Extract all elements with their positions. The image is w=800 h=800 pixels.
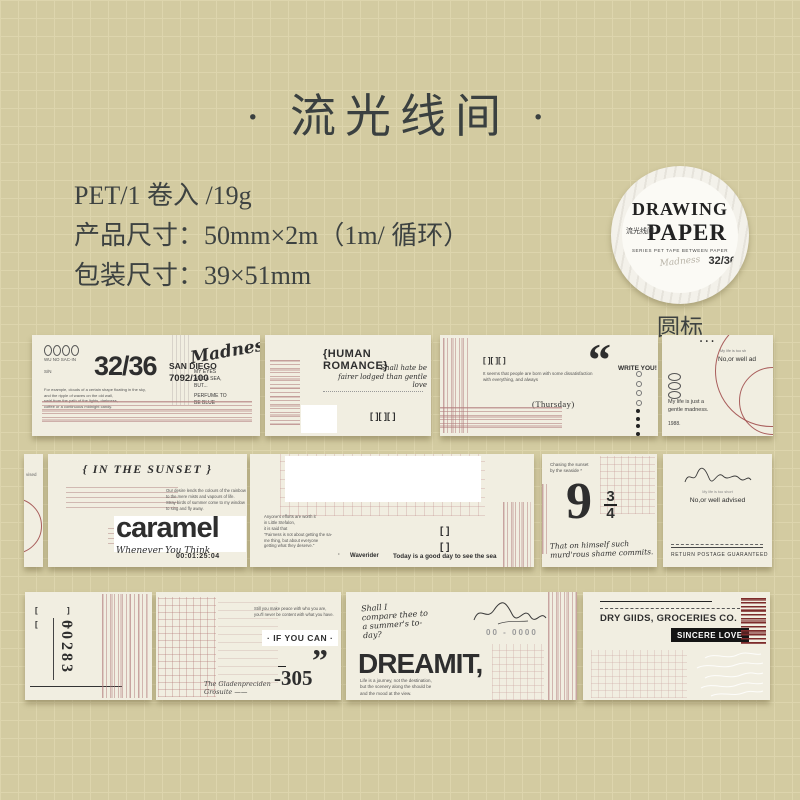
stripe-column [548,592,577,700]
info-package-size: 包装尺寸：39×51mm [74,256,469,296]
shall-i-script: Shall I compare thee to a summer's to- d… [361,600,430,641]
shame-script-text: That on himself such murd'rous shame com… [550,538,654,560]
fraction-bottom: 4 [606,507,614,520]
dots-text: • • • [700,339,715,345]
signature-scribble [468,600,548,628]
tape-roll-badge: DRAWING 流光线间 PAPER SERIES PET TAPE BETWE… [611,166,749,304]
stripe-column [503,502,531,567]
strip3-segment-b: Still you make peace with who you are, y… [156,592,341,700]
stripe-block [270,360,300,428]
dashed-rule [671,544,763,545]
stripe-band [440,407,562,428]
pink-grid [492,644,544,700]
tape-strip-1: WU NO SAC-IN S/N 32/36 SAN DIEGO 7092/10… [32,335,773,436]
waverider-bullet: · [338,552,340,558]
header-dashed-rule [600,608,740,609]
fraction-top: 3 [606,490,614,503]
bracket-row-2: [ ] [440,542,449,553]
strip1-segment-a: WU NO SAC-IN S/N 32/36 SAN DIEGO 7092/10… [32,335,260,436]
romance-script-line2: fairer lodged than gentle love [325,373,427,389]
tiny-text: My life is too short [663,490,772,495]
ruled-lines [66,487,178,509]
strip3-segment-d: DRY GIIDS, GROCERIES CO. SINCERE LOVE [583,592,770,700]
journey-paragraph: Life is a journey, not the destination, … [360,678,432,697]
badge-number-text: 32/36 [708,255,736,267]
serial-header-text: WU NO SAC-IN [44,357,76,363]
page-title: · 流光线间 · [0,80,800,146]
dreamit-text: DREAMIT, [358,648,482,680]
strip1-segment-b: {HUMAN ROMANCE} Shall hate be fairer lod… [265,335,431,436]
gladen-script-text: The Gladenpreciden Grosuite —— [204,680,271,696]
white-script-scribble [675,650,765,698]
note1-text: MY EYES AND A SEA, BUT... [194,369,222,390]
strip1-segment-d: • • • My life is too sh No,or well ad My… [662,335,773,436]
dissatisfaction-text: It seems that people are born with some … [483,371,593,384]
waverider-text: Waverider [350,553,379,559]
pink-grid [591,650,687,698]
bracket-row-1: [ ] [440,526,449,537]
tape-strip-2: vised { IN THE SUNSET } Our desire lends… [24,454,772,567]
sincere-love-box: SINCERE LOVE [671,628,749,642]
badge-drawing-text: DRAWING [622,199,738,220]
tape-roll-label: DRAWING 流光线间 PAPER SERIES PET TAPE BETWE… [622,177,738,293]
white-patch [301,405,337,433]
rainbow-paragraph: Our desire lends the colours of the rain… [166,488,246,512]
minus-305-number: -305 [274,666,313,691]
grocery-store-text: DRY GIIDS, GROCERIES CO. [600,613,737,624]
still-you-text: Still you make peace with who you are, y… [254,606,338,618]
nine-number: 9 [566,476,592,528]
info-product-size: 产品尺寸：50mm×2m（1m/ 循环） [74,216,469,256]
stripe-edge [542,484,548,554]
signature-scribble [681,466,753,488]
white-grid-patch [285,456,481,502]
vertical-rule [53,618,54,680]
chain-icon [668,373,681,400]
partial-text: vised [26,472,37,478]
stripe-band [42,401,252,425]
caramel-brand-text: caramel [116,512,219,545]
slogan-text: Today is a good day to see the sea [393,553,496,560]
madness-script-text: Madness [189,335,260,368]
stripe-column [102,594,148,698]
corner-mark: [ [35,620,38,629]
tape-strip-3: [ [ ] ] 00283 Still you make peace with … [25,592,770,700]
strip1-segment-c: [ ][ ][ ] It seems that people are born … [440,335,658,436]
barcode [741,598,766,644]
brackets-text: [ ][ ][ ] [483,356,506,365]
three-quarters-fraction: 3 4 [604,490,617,520]
product-image: · 流光线间 · PET/1 卷入 /19g 产品尺寸：50mm×2m（1m/ … [0,0,800,800]
strip3-segment-c: Shall I compare thee to a summer's to- d… [346,592,577,700]
dotted-rule [323,391,423,392]
romance-script-line1: Shall hate be [345,364,427,372]
quote-mark: “ [588,337,611,383]
red-arc [24,498,42,554]
corner-mark: [ [35,606,38,615]
in-the-sunset-title: { IN THE SUNSET } [48,462,247,477]
advised-text: No,or well advised [663,496,772,506]
strip2-segment-a: { IN THE SUNSET } Our desire lends the c… [48,454,247,567]
solid-rule [671,547,763,548]
sn-text: S/N [44,369,52,375]
strip2-segment-d: My life is too short No,or well advised … [663,454,772,567]
product-info: PET/1 卷入 /19g 产品尺寸：50mm×2m（1m/ 循环） 包装尺寸：… [74,176,469,296]
timecode-text: 00:01:25:04 [176,553,220,560]
gentle-madness-text: My life is just a gentle madness. [668,399,708,414]
badge-paper-text: PAPER [647,220,727,245]
quote-mark: ” [312,644,328,676]
dot-column [636,371,642,436]
strip3-segment-a: [ [ ] ] 00283 [25,592,152,700]
tiny-text: My life is too sh [720,349,746,354]
fairness-paragraph: Anyone's efforts are worth it in Little … [264,514,334,549]
strip2-segment-b: Anyone's efforts are worth it in Little … [250,454,534,567]
info-material: PET/1 卷入 /19g [74,176,469,216]
brackets-text: [ ][ ][ ] [370,411,395,421]
strip2-segment-partial: vised [24,454,43,567]
advised-text: No,or well ad [718,355,756,364]
serial-number-vertical: 00283 [57,620,75,675]
corner-mark: ] [67,606,70,615]
header-rule [600,601,712,602]
big-number-text: 32/36 [94,351,157,382]
strip2-segment-c: Chasing the sunset by the seaside * 9 3 … [542,454,657,567]
return-postage-text: RETURN POSTAGE GUARANTEED [671,552,768,558]
year-text: 1988. [668,421,681,428]
badge-cn-text: 流光线间 [626,226,654,236]
code-boxes-text: 00 - 0000 [486,628,538,637]
